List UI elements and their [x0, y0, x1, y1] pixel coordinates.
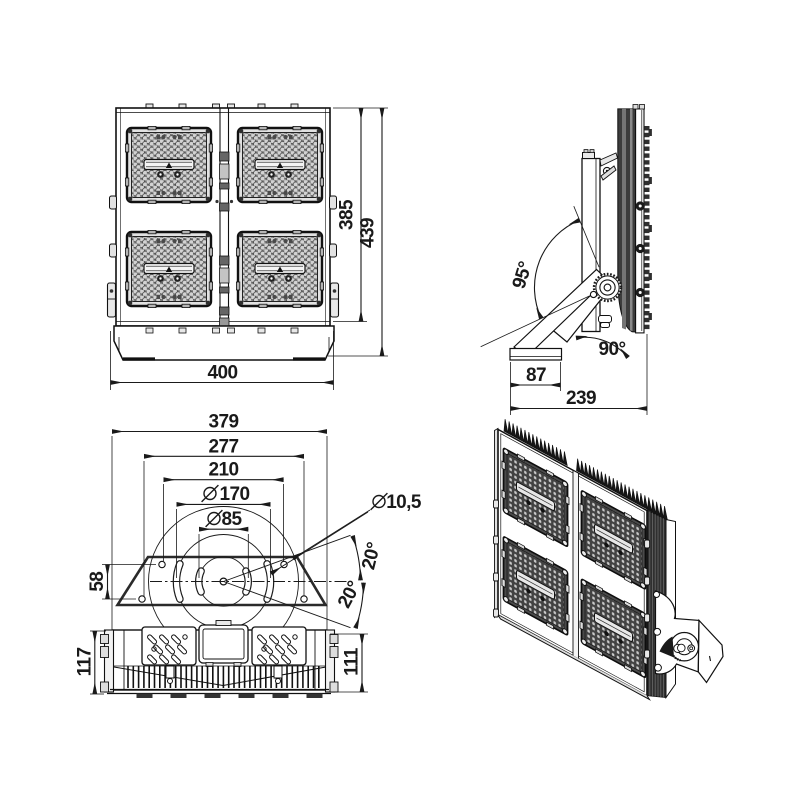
svg-text:85: 85 [222, 509, 243, 530]
svg-text:58: 58 [87, 572, 108, 592]
svg-text:439: 439 [358, 218, 379, 248]
svg-text:210: 210 [209, 460, 239, 481]
svg-text:239: 239 [566, 388, 596, 409]
svg-text:277: 277 [209, 436, 239, 457]
svg-text:87: 87 [526, 365, 546, 386]
svg-text:170: 170 [220, 484, 250, 505]
svg-text:90°: 90° [599, 339, 626, 360]
svg-text:117: 117 [75, 648, 96, 677]
svg-text:10,5: 10,5 [386, 492, 422, 513]
svg-text:385: 385 [337, 199, 358, 230]
svg-text:400: 400 [208, 363, 238, 384]
svg-text:111: 111 [342, 647, 363, 676]
svg-text:379: 379 [209, 412, 239, 433]
